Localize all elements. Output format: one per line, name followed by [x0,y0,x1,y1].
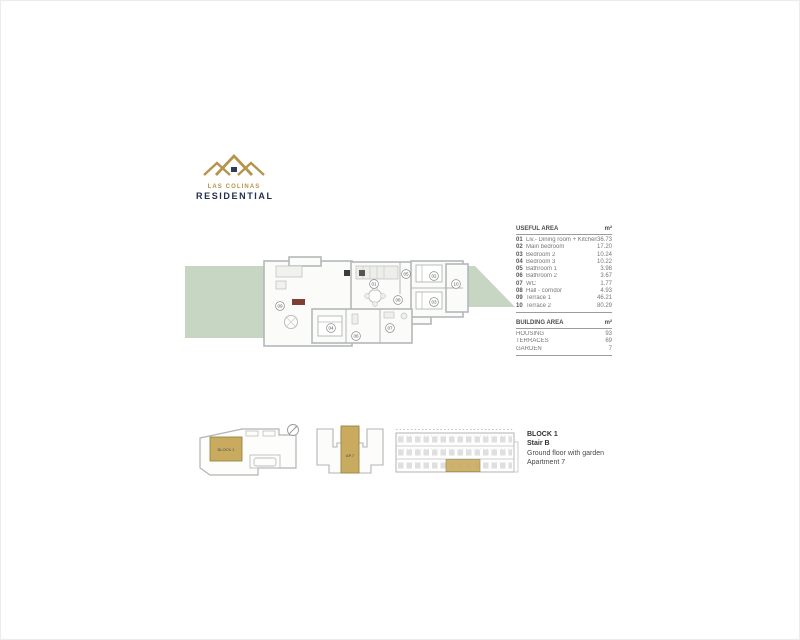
svg-text:05: 05 [403,272,409,277]
useful-area-table: USEFUL AREA m² 01Liv.- Dining room + Kit… [516,226,612,313]
block-highlight-label: BLOCK 1 [218,447,236,452]
table-row: 09Terrace 146.21 [516,295,612,302]
elevation-diagram [394,426,520,487]
table-row: TERRACES69 [516,338,612,345]
logo-roof-icon [196,152,272,178]
svg-text:08: 08 [395,298,401,303]
table-row: 01Liv.- Dining room + Kitchen36.73 [516,237,612,244]
apartment-label: Apartment 7 [527,458,604,467]
apartment-highlight-label: AP.7 [346,453,355,458]
table-row: 10Terrace 280.29 [516,303,612,310]
table-row: GARDEN7 [516,346,612,353]
table-row: 05Bathroom 13.98 [516,266,612,273]
logo-name: LAS COLINAS [196,184,272,190]
building-area-unit: m² [605,320,612,326]
svg-text:09: 09 [277,304,283,309]
plan-sheet-page: LAS COLINAS RESIDENTIAL [0,0,800,640]
svg-text:02: 02 [431,274,437,279]
footprint-diagram: AP.7 [314,421,386,496]
svg-text:06: 06 [353,334,359,339]
location-info: BLOCK 1 Stair B Ground floor with garden… [527,430,604,468]
svg-text:07: 07 [387,326,393,331]
table-row: HOUSING93 [516,331,612,338]
svg-text:01: 01 [371,282,377,287]
building-area-title: BUILDING AREA [516,320,563,326]
useful-area-title: USEFUL AREA [516,226,558,232]
table-row: 08Hall - corridor4.93 [516,288,612,295]
stair-label: Stair B [527,439,604,448]
table-row: 02Main bedroom17.20 [516,244,612,251]
elevation-highlight [446,460,480,472]
table-row: 03Bedroom 210.24 [516,252,612,259]
svg-text:03: 03 [431,300,437,305]
site-plan-diagram: BLOCK 1 [186,422,302,495]
table-row: 04Bedroom 310.22 [516,259,612,266]
table-row: 07WC1.77 [516,281,612,288]
logo: LAS COLINAS RESIDENTIAL [196,152,272,201]
useful-area-unit: m² [605,226,612,232]
svg-text:04: 04 [328,326,334,331]
apartment-highlight [341,426,359,473]
block-label: BLOCK 1 [527,430,604,439]
floor-plan: 01 02 03 04 05 06 07 08 09 10 [184,254,516,352]
building-area-table: BUILDING AREA m² HOUSING93 TERRACES69 GA… [516,320,612,356]
garden-left [185,266,265,338]
logo-type: RESIDENTIAL [196,191,272,201]
table-row: 06Bathroom 23.67 [516,273,612,280]
svg-text:10: 10 [453,282,459,287]
compass-icon [288,425,299,436]
floor-label: Ground floor with garden [527,449,604,458]
